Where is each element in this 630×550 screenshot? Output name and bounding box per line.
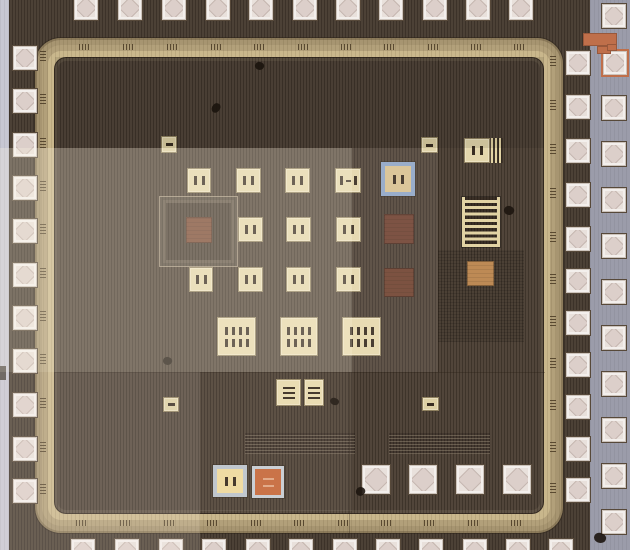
mark [194, 176, 197, 185]
ring-tick [213, 520, 214, 526]
ring-tick [384, 520, 385, 526]
ring-tick [214, 44, 215, 50]
ring-tick [550, 492, 556, 493]
ring-tick [120, 520, 121, 526]
ring-tick [217, 44, 218, 50]
stripe-fill-block-2 [389, 433, 490, 454]
mark [480, 146, 483, 155]
bond-pad-right-inner-6 [565, 268, 591, 294]
ring-tick [220, 44, 221, 50]
pad-core [16, 352, 34, 370]
ring-tick [344, 520, 345, 526]
probe-marks [225, 477, 236, 486]
mark [232, 339, 235, 347]
ring-tick [347, 520, 348, 526]
pad-diamond [605, 191, 623, 209]
probe-marks [225, 327, 249, 347]
bond-pad-right-inner-2 [565, 94, 591, 120]
ring-tick [550, 409, 556, 410]
ring-tick [344, 44, 345, 50]
pad-diamond [552, 542, 570, 550]
vertical-bars-block [491, 138, 503, 163]
ring-ticks-right-11 [550, 483, 556, 496]
pad-core [569, 272, 587, 290]
mark [343, 275, 346, 284]
ring-tick [428, 44, 429, 50]
pad-diamond [121, 0, 139, 17]
pad-diamond [459, 468, 481, 491]
ring-ticks-top-6 [298, 44, 311, 50]
bond-pad-left-10 [12, 436, 38, 462]
pad-core [252, 0, 270, 17]
bond-pad-bottom-6 [288, 538, 314, 550]
bond-pad-bottom-9 [418, 538, 444, 550]
mark [233, 477, 236, 486]
ring-ticks-bottom-11 [511, 520, 524, 526]
ring-tick [40, 268, 46, 269]
bond-pad-right-inner-8 [565, 352, 591, 378]
ring-tick [123, 44, 124, 50]
ring-tick [251, 520, 252, 526]
mark-row [350, 339, 374, 347]
inner-white-pad-4 [502, 464, 532, 495]
mark [293, 275, 296, 284]
pad-core [569, 142, 587, 160]
pad-core [16, 49, 34, 67]
pad-core [336, 542, 354, 550]
ring-tick [474, 520, 475, 526]
ring-tick [387, 44, 388, 50]
pad-diamond [365, 468, 387, 491]
ring-tick [40, 187, 46, 188]
ring-tick [82, 44, 83, 50]
pad-diamond [569, 230, 587, 248]
pad-diamond [605, 467, 623, 485]
probe-marks [245, 275, 256, 284]
bond-pad-top-3 [161, 0, 187, 21]
bond-pad-right-outer-7 [601, 279, 627, 305]
mark [346, 180, 351, 182]
pad-diamond [339, 0, 357, 17]
pad-diamond [77, 0, 95, 17]
pad-core [605, 237, 623, 255]
probe-marks [283, 387, 295, 399]
pad-diamond [569, 398, 587, 416]
ring-tick [40, 320, 46, 321]
ring-tick [550, 280, 556, 281]
pad-core [605, 467, 623, 485]
mark-row [225, 327, 249, 335]
bond-pad-left-4 [12, 175, 38, 201]
pad-core [605, 329, 623, 347]
pad-diamond [162, 542, 180, 550]
ring-tick [307, 44, 308, 50]
ring-ticks-right-8 [550, 358, 556, 371]
copper-square [467, 261, 494, 286]
mark [294, 339, 297, 347]
pair-square-right [304, 379, 324, 406]
big-probe-square-3 [342, 317, 381, 356]
ring-tick [210, 520, 211, 526]
pad-diamond [569, 272, 587, 290]
ring-tick [520, 44, 521, 50]
probe-square-a4 [335, 168, 361, 193]
ring-tick [517, 44, 518, 50]
pad-core [209, 0, 227, 17]
ring-tick [40, 184, 46, 185]
ring-tick [424, 520, 425, 526]
ring-tick [550, 442, 556, 443]
probe-square-c4 [336, 267, 361, 292]
pad-diamond [422, 542, 440, 550]
pad-core [605, 513, 623, 531]
ring-tick [297, 520, 298, 526]
bond-pad-right-inner-9 [565, 394, 591, 420]
ring-tick [298, 44, 299, 50]
edge-strip-notch [0, 366, 6, 380]
ring-tick [550, 406, 556, 407]
ring-ticks-bottom-1 [76, 520, 89, 526]
pad-diamond [569, 98, 587, 116]
pad-diamond [412, 468, 434, 491]
mark [350, 339, 353, 347]
ring-tick [164, 520, 165, 526]
ring-tick [338, 520, 339, 526]
pad-core [16, 482, 34, 500]
ring-tick [550, 483, 556, 484]
pad-core [249, 542, 267, 550]
ring-tick [550, 319, 556, 320]
ring-tick [126, 520, 127, 526]
mark [351, 275, 354, 284]
pad-core [605, 191, 623, 209]
probe-marks [166, 143, 173, 146]
pad-diamond [509, 542, 527, 550]
ring-tick [40, 448, 46, 449]
ring-tick [468, 520, 469, 526]
ring-ticks-right-7 [550, 316, 556, 329]
bond-pad-top-6 [292, 0, 318, 21]
ring-tick [40, 233, 46, 234]
ring-tick [40, 442, 46, 443]
pad-core [16, 136, 34, 154]
ring-tick [40, 230, 46, 231]
ring-tick [471, 520, 472, 526]
ring-tick [471, 44, 472, 50]
ring-tick [257, 44, 258, 50]
mark [239, 339, 242, 347]
mark [287, 327, 290, 335]
bond-pad-right-inner-5 [565, 226, 591, 252]
pad-diamond [605, 99, 623, 117]
probe-square-c1 [189, 267, 213, 292]
pad-core [426, 0, 444, 17]
pad-diamond [16, 482, 34, 500]
ring-ticks-right-6 [550, 274, 556, 287]
ring-tick [260, 520, 261, 526]
ring-ticks-bottom-10 [468, 520, 481, 526]
ring-tick [550, 486, 556, 487]
ring-tick [550, 451, 556, 452]
bond-pad-top-2 [117, 0, 143, 21]
mark [283, 392, 295, 394]
ring-ticks-left-4 [40, 181, 46, 194]
pad-diamond [606, 54, 624, 72]
probe-square-a1 [187, 168, 211, 193]
mark [204, 275, 207, 284]
ring-ticks-right-2 [550, 100, 556, 113]
ring-tick [550, 403, 556, 404]
mini-square-4 [422, 397, 439, 411]
inner-white-pad-3 [455, 464, 485, 495]
probe-marks [472, 146, 483, 155]
ring-tick [40, 144, 46, 145]
mini-square-1 [161, 136, 177, 153]
ring-tick [170, 44, 171, 50]
ring-ticks-bottom-4 [207, 520, 220, 526]
pad-diamond [569, 356, 587, 374]
bond-pad-left-7 [12, 305, 38, 331]
pad-diamond [605, 375, 623, 393]
ring-tick [40, 363, 46, 364]
ring-tick [40, 138, 46, 139]
ring-tick [40, 141, 46, 142]
gray-bordered-cream-square [213, 465, 247, 497]
ring-tick [79, 44, 80, 50]
probe-marks [350, 327, 374, 347]
ring-tick [40, 451, 46, 452]
mark [202, 176, 205, 185]
ring-ticks-right-9 [550, 400, 556, 413]
probe-marks [427, 403, 434, 406]
ring-tick [430, 520, 431, 526]
mark [371, 339, 374, 347]
mark-row [287, 327, 311, 335]
pad-diamond [569, 314, 587, 332]
pad-core [74, 542, 92, 550]
bond-pad-top-7 [335, 0, 361, 21]
pad-core [16, 266, 34, 284]
probe-square-b3 [336, 217, 361, 242]
probe-marks [426, 144, 433, 147]
mark [357, 339, 360, 347]
brown-square-left [186, 217, 212, 243]
bond-pad-top-10 [465, 0, 491, 21]
probe-square-a2 [236, 168, 261, 193]
big-probe-square-2 [280, 317, 318, 356]
probe-marks [343, 275, 354, 284]
bond-pad-left-2 [12, 88, 38, 114]
ring-tick [550, 277, 556, 278]
ring-tick [431, 44, 432, 50]
mark-row [225, 339, 249, 347]
ring-tick [550, 283, 556, 284]
ring-tick [387, 520, 388, 526]
ring-tick [76, 520, 77, 526]
ring-tick [173, 520, 174, 526]
mark [354, 176, 357, 185]
pad-core [512, 0, 530, 17]
ring-ticks-left-11 [40, 484, 46, 497]
mark [246, 339, 249, 347]
mark [426, 144, 433, 147]
probe-marks [287, 327, 311, 347]
ring-tick [550, 232, 556, 233]
probe-square-topright [464, 138, 490, 163]
ring-tick [381, 520, 382, 526]
mark [246, 327, 249, 335]
ring-tick [40, 147, 46, 148]
bond-pad-left-11 [12, 478, 38, 504]
pad-core [412, 468, 434, 491]
pad-core [118, 542, 136, 550]
ring-ticks-right-5 [550, 232, 556, 245]
pad-core [605, 99, 623, 117]
pad-core [469, 0, 487, 17]
probe-marks [308, 387, 320, 399]
mark [308, 387, 320, 389]
ring-tick [550, 197, 556, 198]
ring-tick [550, 62, 556, 63]
bond-pad-bottom-3 [158, 538, 184, 550]
pad-diamond [16, 222, 34, 240]
maroon-square-1 [384, 214, 414, 244]
ring-tick [254, 520, 255, 526]
bond-pad-right-outer-5 [601, 187, 627, 213]
ring-tick [550, 358, 556, 359]
mark [245, 275, 248, 284]
pad-core [16, 222, 34, 240]
ring-tick [40, 404, 46, 405]
ring-tick [40, 97, 46, 98]
ring-tick [550, 364, 556, 365]
ring-ticks-bottom-2 [120, 520, 133, 526]
mark [301, 275, 304, 284]
pad-diamond [252, 0, 270, 17]
ring-tick [260, 44, 261, 50]
ring-tick [40, 181, 46, 182]
pad-core [16, 179, 34, 197]
bond-pad-top-1 [73, 0, 99, 21]
ring-tick [123, 520, 124, 526]
ring-tick [550, 109, 556, 110]
ring-ticks-left-3 [40, 138, 46, 151]
ring-ticks-right-3 [550, 144, 556, 157]
bond-pad-bottom-10 [462, 538, 488, 550]
mark [166, 143, 173, 146]
ring-tick [550, 400, 556, 401]
mark [283, 397, 295, 399]
probe-marks [243, 176, 254, 185]
pad-core [569, 356, 587, 374]
mini-square-3 [163, 397, 179, 412]
ring-tick [40, 103, 46, 104]
bond-pad-left-1 [12, 45, 38, 71]
ring-tick [129, 520, 130, 526]
ring-ticks-top-5 [254, 44, 267, 50]
pad-core [77, 0, 95, 17]
pad-diamond [469, 0, 487, 17]
pad-diamond [165, 0, 183, 17]
ring-tick [350, 44, 351, 50]
pad-diamond [605, 283, 623, 301]
ring-tick [40, 274, 46, 275]
pad-core [569, 230, 587, 248]
big-probe-square-1 [217, 317, 256, 356]
pad-core [605, 283, 623, 301]
ring-tick [517, 520, 518, 526]
ring-tick [550, 194, 556, 195]
ring-ticks-bottom-5 [251, 520, 264, 526]
pad-diamond [249, 542, 267, 550]
ring-tick [550, 367, 556, 368]
mark [308, 392, 320, 394]
ring-ticks-left-7 [40, 311, 46, 324]
pad-diamond [569, 481, 587, 499]
ring-tick [301, 44, 302, 50]
inner-white-pad-2 [408, 464, 438, 495]
probe-marks [393, 175, 404, 184]
ring-tick [550, 188, 556, 189]
ring-tick [341, 44, 342, 50]
mark-row [350, 327, 374, 335]
pad-core [16, 440, 34, 458]
pad-core [292, 542, 310, 550]
pad-diamond [605, 513, 623, 531]
pad-diamond [296, 0, 314, 17]
bond-pad-right-outer-4 [601, 141, 627, 167]
pad-diamond [74, 542, 92, 550]
pad-diamond [16, 266, 34, 284]
ring-tick [216, 520, 217, 526]
ring-tick [477, 44, 478, 50]
mark [243, 176, 246, 185]
pad-core [16, 396, 34, 414]
bond-pad-bottom-7 [332, 538, 358, 550]
ring-tick [384, 44, 385, 50]
ring-ticks-left-2 [40, 94, 46, 107]
bond-pad-top-8 [378, 0, 404, 21]
ring-tick [550, 56, 556, 57]
ring-tick [257, 520, 258, 526]
ring-tick [550, 59, 556, 60]
ring-tick [514, 520, 515, 526]
pad-diamond [336, 542, 354, 550]
pad-diamond [569, 186, 587, 204]
ring-tick [40, 490, 46, 491]
ring-tick [550, 147, 556, 148]
ring-tick [550, 144, 556, 145]
ring-tick [511, 520, 512, 526]
ring-tick [514, 44, 515, 50]
pad-core [162, 542, 180, 550]
ring-ticks-top-4 [211, 44, 224, 50]
mark [472, 146, 475, 155]
ring-ticks-bottom-8 [381, 520, 394, 526]
mark [301, 339, 304, 347]
pad-core [605, 7, 623, 25]
mark [350, 327, 353, 335]
ring-tick [40, 51, 46, 52]
ring-tick [40, 398, 46, 399]
ring-ticks-bottom-7 [338, 520, 351, 526]
pad-core [466, 542, 484, 550]
ring-tick [173, 44, 174, 50]
ring-tick [129, 44, 130, 50]
pad-diamond [16, 352, 34, 370]
ring-tick [40, 54, 46, 55]
ring-tick [176, 44, 177, 50]
